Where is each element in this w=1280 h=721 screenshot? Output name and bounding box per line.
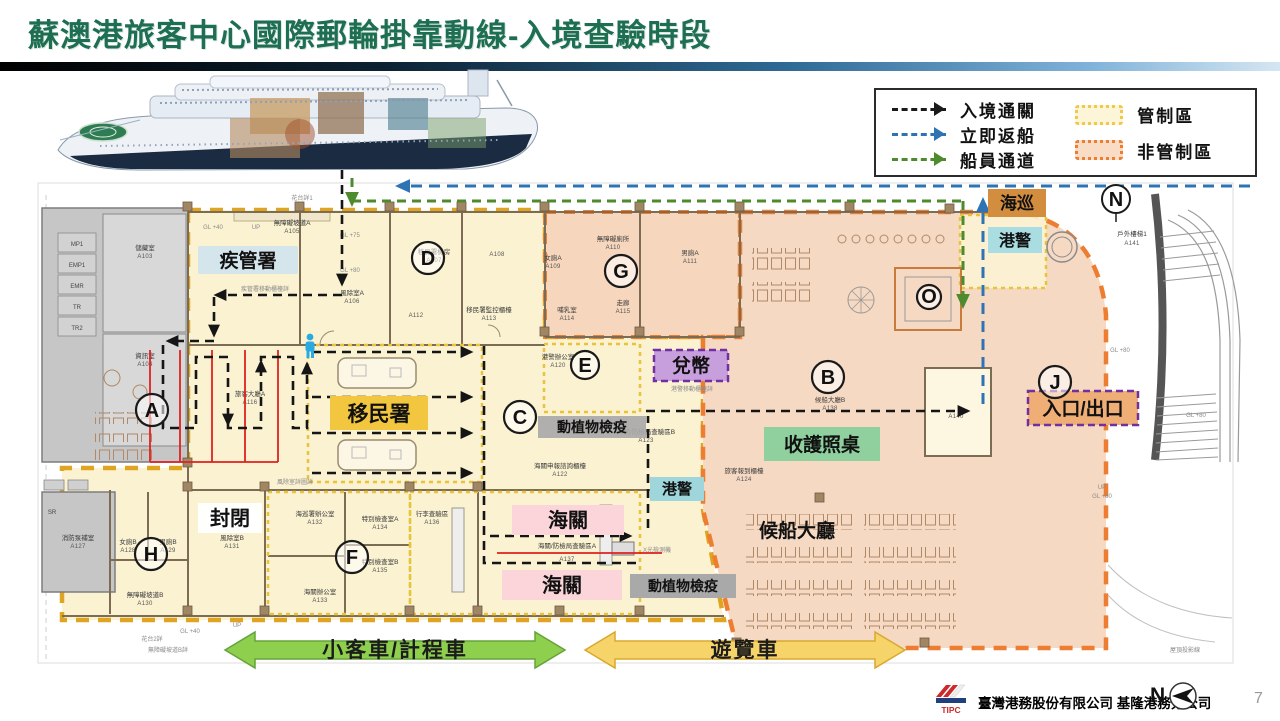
room-name: 走廊 [617, 298, 631, 307]
note: GL +40 [180, 629, 200, 635]
footer-north-compass: N [1150, 680, 1199, 712]
car-taxi-label: 小客車/計程車 [322, 638, 468, 662]
room-id: A109 [545, 264, 561, 270]
note: GL +80 [1110, 348, 1130, 354]
room-name: 風除室B [220, 533, 244, 542]
room-name: 資訊室 [135, 351, 155, 360]
utility-cell: EMR [70, 284, 84, 290]
note: 花台2詳 [141, 635, 162, 643]
room-name: 海關/防檢局查驗區A [538, 541, 597, 550]
room-name: 哺乳室 [557, 305, 577, 314]
quarantine-mid-label: 動植物檢疫 [557, 419, 627, 435]
entrance-exit-label: 入口/出口 [1042, 397, 1123, 420]
utility-cell: MP1 [71, 242, 84, 248]
port-police-mid-label: 港警 [662, 480, 692, 498]
room-id: A134 [372, 525, 388, 531]
legend-flow-column: 入境通關 立即返船 船員通道 [892, 97, 1075, 168]
room-name: 無障礙坡道B [127, 590, 164, 599]
room-name: 海關申報諮詢櫃檯 [534, 461, 587, 470]
room-id: A131 [224, 544, 240, 550]
tipc-logo-text: TIPC [941, 705, 960, 715]
legend-label: 立即返船 [960, 122, 1036, 147]
room-id: A128 [120, 548, 136, 554]
utility-cell: TR2 [71, 326, 83, 332]
legend-label: 入境通關 [960, 97, 1036, 122]
legend-row-controlled: 管制區 [1075, 102, 1245, 127]
room-name: 無障礙廁所 [597, 234, 630, 243]
passport-desk-label: 收護照桌 [784, 433, 860, 456]
room-id: A111 [683, 259, 698, 265]
legend-zone-column: 管制區 非管制區 [1075, 97, 1245, 168]
currency-exchange-label: 兌幣 [672, 355, 710, 377]
room-id: A130 [137, 601, 153, 607]
zone-letter: E [578, 355, 591, 377]
note: 風除室詳圖詳 [277, 478, 313, 486]
room-name: 海關辦公室 [304, 587, 337, 596]
zone-letter: C [513, 407, 527, 429]
svg-text:N: N [1109, 189, 1123, 211]
room-id: A113 [482, 316, 497, 322]
utility-cell: EMP1 [69, 263, 86, 269]
legend-box: 入境通關 立即返船 船員通道 管制區 非管制區 [874, 88, 1257, 177]
room-id: A110 [606, 245, 621, 251]
zone-letter: B [821, 367, 835, 389]
room-name: 無障礙坡道A [274, 218, 312, 227]
note: 港警移動櫃檯詳 [671, 385, 713, 393]
room-name: 港警辦公室 [542, 352, 575, 361]
room-name: 候船大廳B [815, 395, 845, 404]
zone-letter: J [1049, 372, 1060, 394]
closed-label: 封閉 [210, 506, 250, 530]
room-id: A140 [948, 414, 964, 420]
legend-row-crew: 船員通道 [892, 147, 1075, 172]
blue-dashed-arrow-icon [892, 133, 946, 136]
legend-label: 管制區 [1137, 102, 1194, 127]
note: 疾管署移動櫃檯詳 [241, 285, 289, 293]
note: UP [252, 225, 260, 231]
note: UP [233, 623, 241, 629]
customs-lower-label: 海關 [542, 573, 582, 597]
room-name: 特別檢查室A [362, 514, 400, 523]
cdc-label: 疾管署 [219, 249, 276, 272]
room-id: A132 [307, 520, 323, 526]
note: GL +80 [1092, 494, 1112, 500]
room-name: 風除室A [340, 288, 365, 297]
port-police-top-label: 港警 [999, 231, 1031, 250]
room-id: A114 [560, 316, 575, 322]
non-controlled-area-swatch [1075, 140, 1123, 160]
tour-bus-label: 遊覽車 [711, 638, 780, 662]
zone-letter: H [144, 544, 158, 566]
legend-label: 船員通道 [960, 147, 1036, 172]
room-id: A141 [1124, 241, 1140, 247]
room-id: A124 [736, 477, 752, 483]
room-name: 女廁B [119, 537, 136, 546]
room-id: A127 [70, 544, 86, 550]
legend-row-entry: 入境通關 [892, 97, 1075, 122]
room-id: A133 [312, 598, 328, 604]
zone-letter: O [921, 286, 937, 308]
note: 花台詳1 [291, 194, 313, 202]
room-id: A106 [344, 299, 360, 305]
utility-cell: SR [48, 510, 57, 516]
room-id: A120 [550, 363, 566, 369]
note: 無障礙坡道B詳 [148, 646, 188, 654]
room-name: 消防泵補室 [62, 533, 95, 542]
controlled-area-swatch [1075, 105, 1123, 125]
zone-letter: D [421, 248, 435, 270]
note: GL +80 [1186, 413, 1206, 419]
zone-letter: G [613, 261, 629, 283]
room-name: 男廁A [681, 248, 699, 257]
immigration-label: 移民署 [348, 402, 411, 426]
room-name: 海巡署辦公室 [296, 509, 336, 518]
room-id: A122 [552, 472, 568, 478]
room-name: 旅客報到櫃檯 [725, 466, 765, 475]
tipc-logo: TIPC [934, 682, 970, 721]
room-id: A136 [424, 520, 440, 526]
room-id: A123 [638, 438, 654, 444]
room-id: A115 [616, 309, 631, 315]
room-id: A112 [409, 313, 424, 319]
coast-guard-label: 海巡 [1000, 193, 1034, 213]
legend-label: 非管制區 [1137, 138, 1213, 163]
room-name: 移民署監控櫃檯 [466, 305, 512, 314]
room-name: 儲藏室 [135, 243, 155, 252]
quarantine-lower-label: 動植物檢疫 [648, 578, 718, 594]
cruise-ship-image [58, 70, 538, 170]
room-id: A103 [137, 254, 153, 260]
note: GL +40 [203, 225, 223, 231]
legend-row-noncontrolled: 非管制區 [1075, 138, 1245, 163]
room-name: 戶外樓梯1 [1117, 229, 1147, 238]
customs-upper-label: 海關 [548, 508, 588, 532]
footer-compass-n: N [1150, 684, 1165, 708]
page-number: 7 [1254, 690, 1263, 708]
black-dashed-arrow-icon [892, 108, 946, 111]
utility-cell: TR [73, 305, 82, 311]
room-name: 行李查驗區 [416, 509, 449, 518]
room-id: A105 [284, 229, 300, 235]
room-id: A108 [489, 252, 505, 258]
waiting-hall-label: 候船大廳 [759, 519, 835, 542]
legend-row-return: 立即返船 [892, 122, 1075, 147]
zone-letter: F [346, 547, 358, 569]
green-dashed-arrow-icon [892, 158, 946, 161]
airplane-compass-icon [1167, 680, 1199, 712]
note: UP [1098, 485, 1106, 491]
zone-letter: A [145, 400, 159, 422]
note: 屋頂投影線 [1170, 646, 1200, 654]
room-id: A135 [372, 568, 388, 574]
room-name: 女廁A [544, 253, 562, 262]
